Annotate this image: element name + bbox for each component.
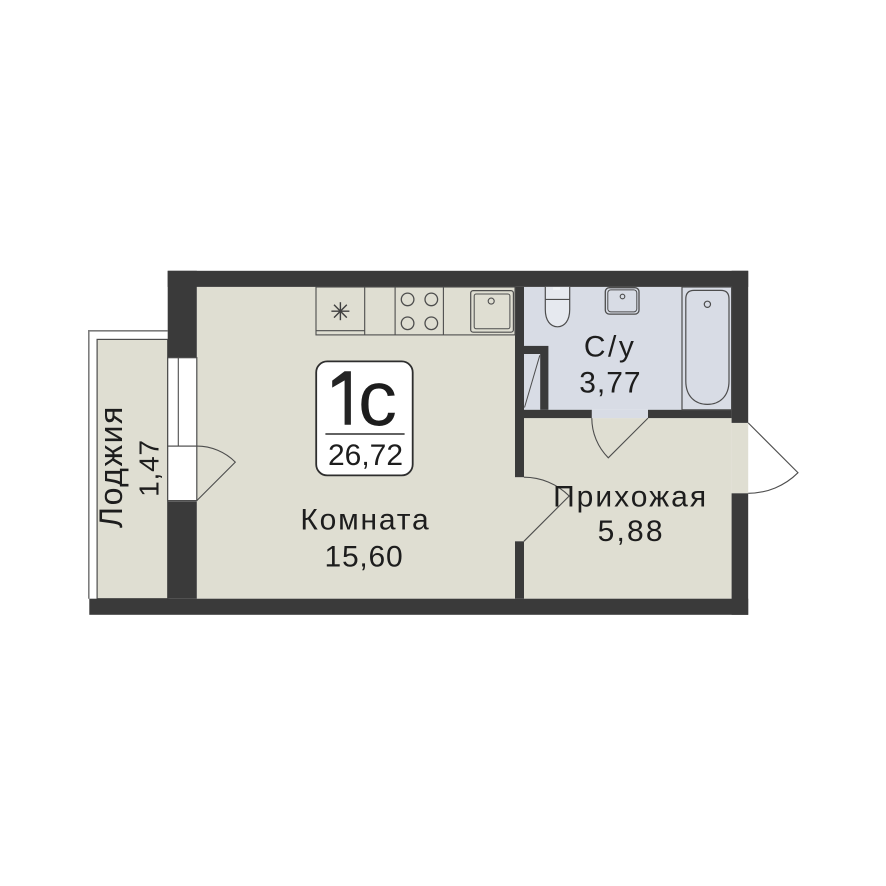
svg-text:26,72: 26,72 bbox=[328, 439, 403, 472]
svg-text:5,88: 5,88 bbox=[598, 515, 665, 548]
svg-text:Комната: Комната bbox=[300, 504, 430, 537]
svg-text:С/у: С/у bbox=[584, 330, 637, 363]
svg-text:Прихожая: Прихожая bbox=[553, 481, 708, 514]
svg-text:15,60: 15,60 bbox=[324, 540, 403, 573]
svg-text:1,47: 1,47 bbox=[134, 439, 165, 497]
svg-text:Лоджия: Лоджия bbox=[93, 405, 129, 528]
svg-text:с: с bbox=[358, 354, 397, 442]
svg-text:3,77: 3,77 bbox=[579, 366, 641, 399]
